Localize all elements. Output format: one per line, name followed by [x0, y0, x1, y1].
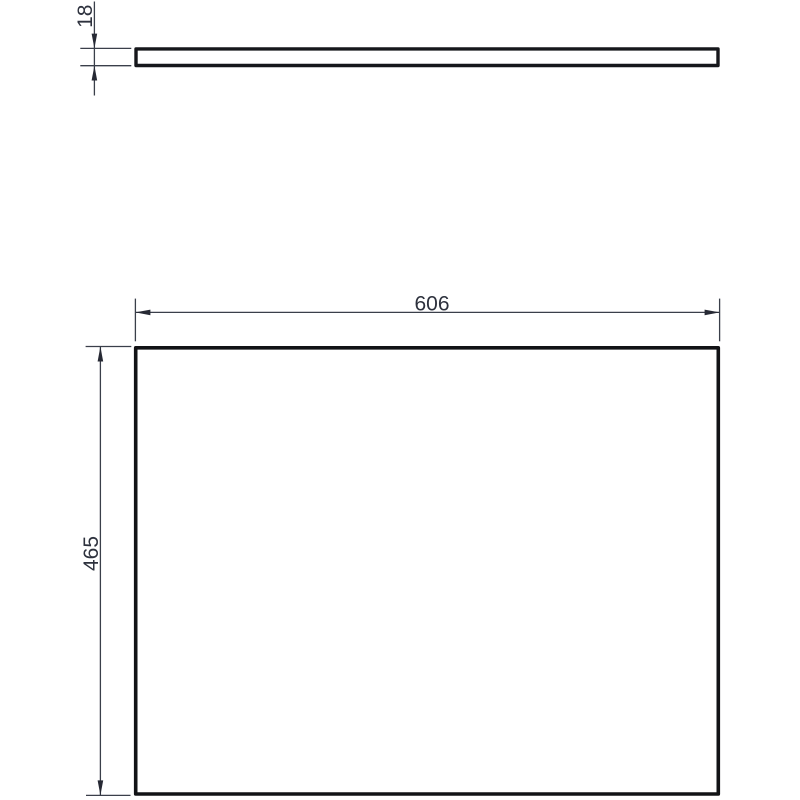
- svg-text:18: 18: [74, 5, 97, 28]
- svg-text:606: 606: [414, 292, 449, 315]
- svg-text:465: 465: [80, 536, 103, 571]
